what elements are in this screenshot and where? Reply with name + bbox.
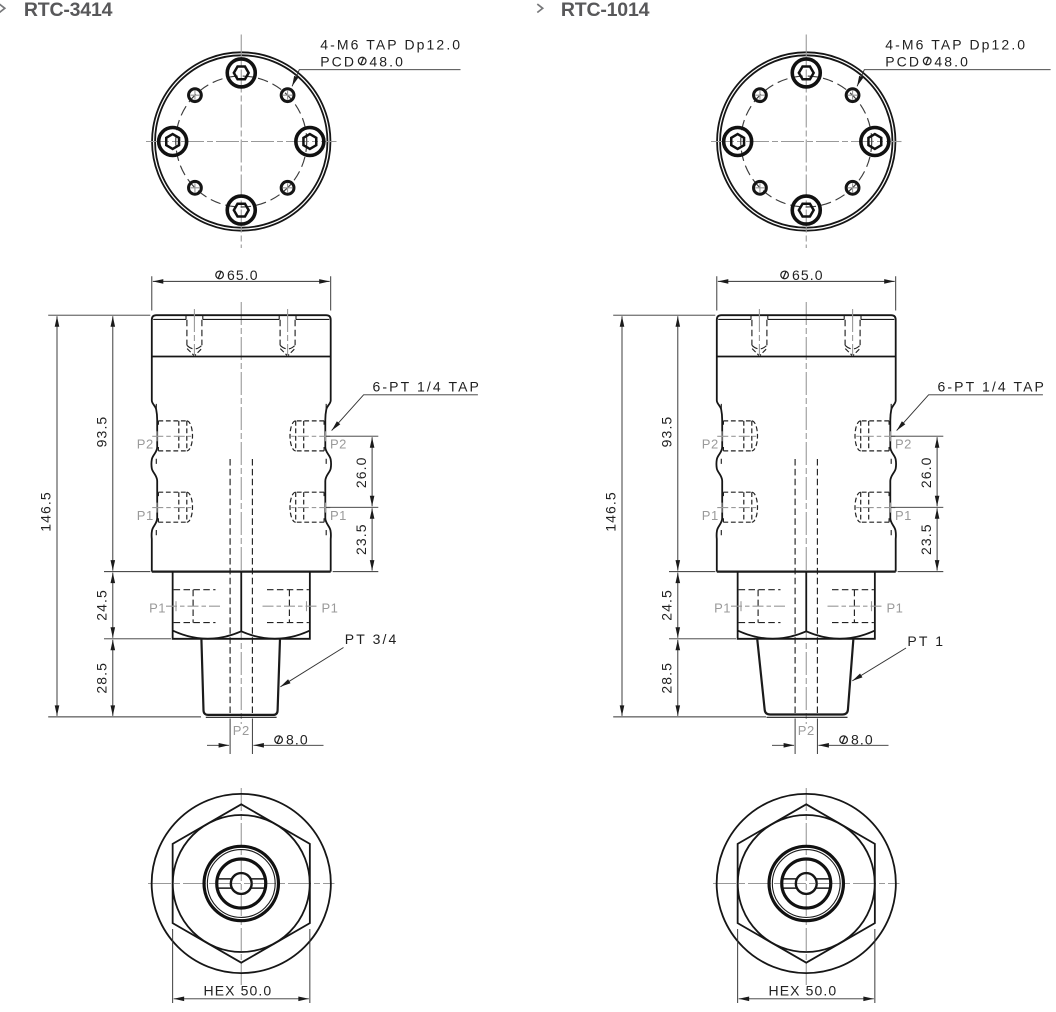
svg-text:PCD: PCD	[885, 53, 921, 69]
svg-text:RTC-1014: RTC-1014	[561, 0, 650, 21]
svg-text:PT 3/4: PT 3/4	[345, 631, 399, 647]
svg-text:48.0: 48.0	[369, 53, 405, 69]
svg-text:PT 1: PT 1	[907, 633, 945, 649]
svg-text:4-M6 TAP Dp12.0: 4-M6 TAP Dp12.0	[885, 36, 1027, 52]
svg-text:PCD: PCD	[320, 53, 356, 69]
svg-text:RTC-3414: RTC-3414	[24, 0, 113, 21]
svg-text:4-M6 TAP Dp12.0: 4-M6 TAP Dp12.0	[320, 36, 462, 52]
svg-text:48.0: 48.0	[934, 53, 970, 69]
